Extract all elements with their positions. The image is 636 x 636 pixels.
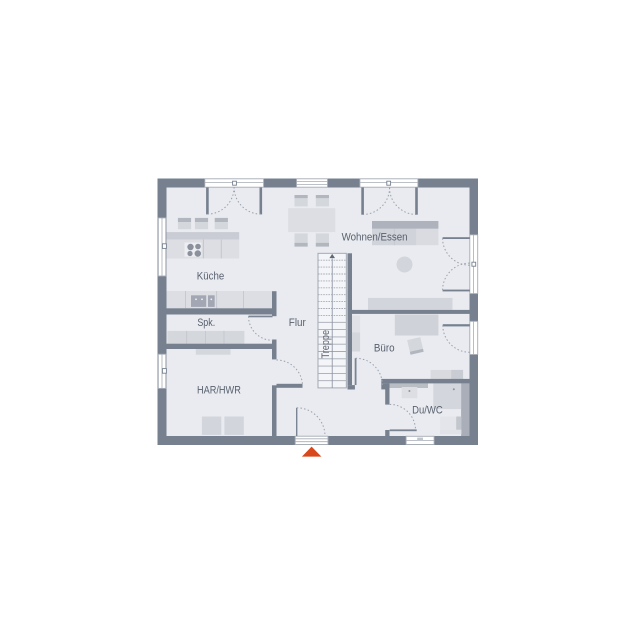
svg-text:Treppe: Treppe: [320, 330, 332, 359]
svg-text:Wohnen/Essen: Wohnen/Essen: [342, 232, 408, 244]
svg-text:Spk.: Spk.: [197, 317, 215, 329]
svg-text:Küche: Küche: [197, 271, 224, 283]
svg-text:Flur: Flur: [289, 317, 306, 329]
svg-text:HAR/HWR: HAR/HWR: [197, 384, 241, 396]
svg-text:Du/WC: Du/WC: [412, 405, 443, 417]
svg-text:Büro: Büro: [374, 343, 395, 355]
